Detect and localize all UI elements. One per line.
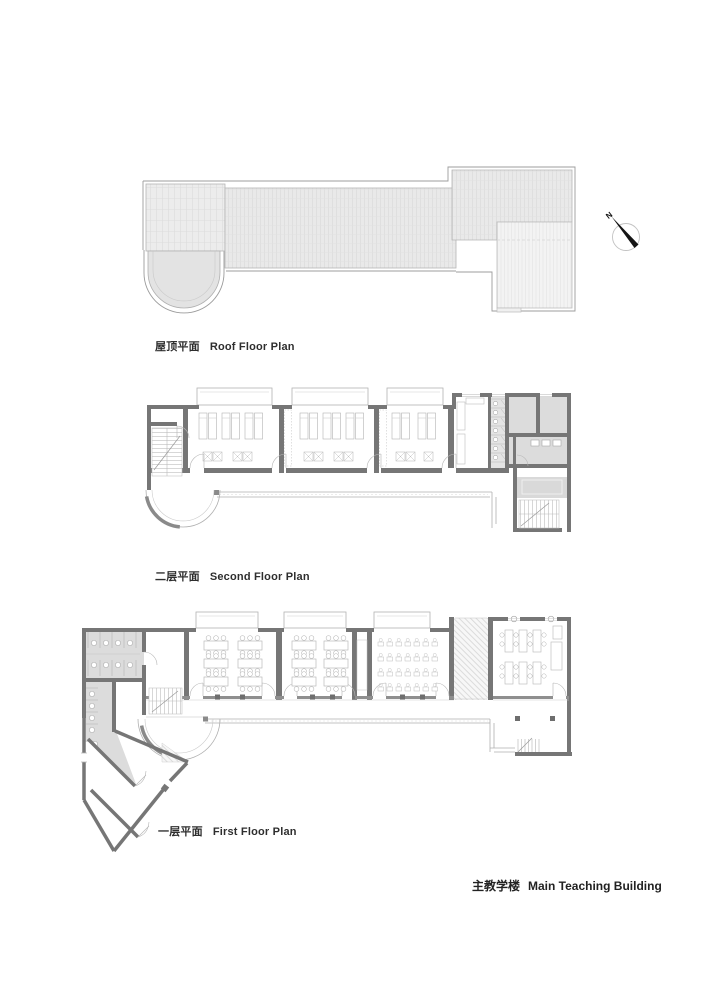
sheet-caption-en: Main Teaching Building <box>528 879 662 893</box>
roof-plan-label-zh: 屋顶平面 <box>155 341 200 353</box>
roof-plan-label-en: Roof Floor Plan <box>210 341 295 353</box>
dorm-furniture <box>199 410 436 466</box>
second-floor-label-en: Second Floor Plan <box>210 571 310 583</box>
sheet-caption: 主教学楼Main Teaching Building <box>472 877 662 894</box>
shelves <box>457 398 484 464</box>
big-classroom <box>500 616 562 684</box>
north-label: N <box>604 210 614 221</box>
second-floor-label: 二层平面Second Floor Plan <box>155 568 310 584</box>
roof-plan-drawing <box>120 150 590 330</box>
roof-right-lower <box>497 222 572 308</box>
second-floor-drawing <box>135 378 585 550</box>
roof-main-band <box>225 188 456 268</box>
first-floor-drawing <box>55 600 590 868</box>
roof-plan-label: 屋顶平面Roof Floor Plan <box>155 338 295 354</box>
drawing-sheet: N 屋顶平面Roof Floor Plan <box>0 0 704 1000</box>
south-wall <box>146 695 569 701</box>
bay-windows <box>196 612 430 628</box>
wc-corridor <box>84 682 136 784</box>
bay-windows <box>197 388 443 405</box>
entry-semicircle <box>138 719 220 762</box>
breezeway-hatch <box>454 618 488 700</box>
first-floor-label: 一层平面First Floor Plan <box>158 823 297 839</box>
roof-left-block <box>146 184 225 251</box>
wc-room <box>84 628 144 682</box>
north-arrow-icon: N <box>595 200 650 260</box>
roof-step <box>497 308 521 312</box>
terrace-railing <box>146 716 555 752</box>
sheet-caption-zh: 主教学楼 <box>472 879 520 893</box>
first-floor-label-zh: 一层平面 <box>158 826 203 838</box>
second-floor-label-zh: 二层平面 <box>155 571 200 583</box>
rear-stairs <box>519 500 559 528</box>
first-floor-label-en: First Floor Plan <box>213 826 297 838</box>
roof-semicircle <box>148 251 220 308</box>
balcony <box>146 490 496 528</box>
stairwell <box>149 688 182 714</box>
